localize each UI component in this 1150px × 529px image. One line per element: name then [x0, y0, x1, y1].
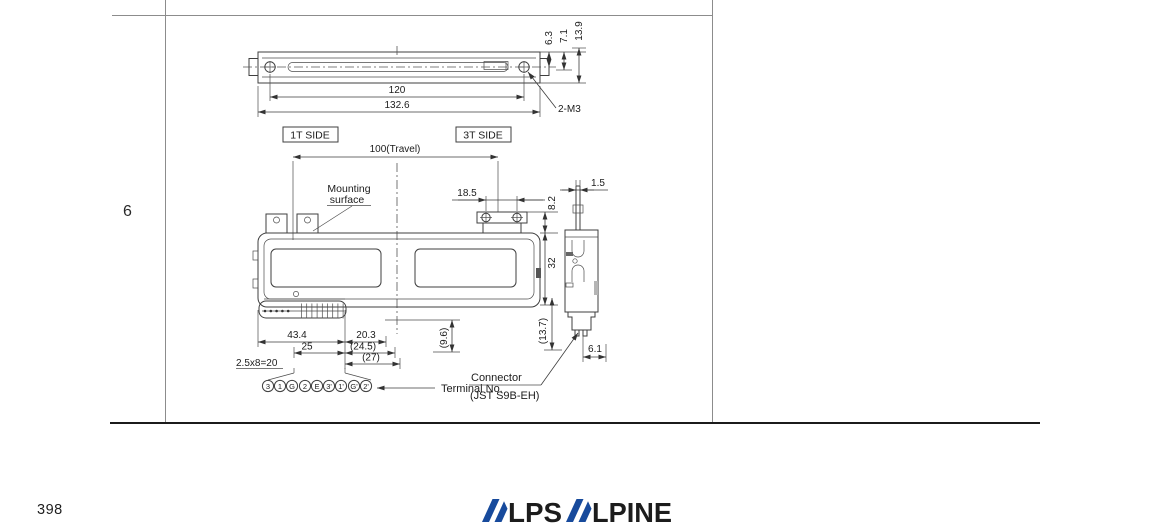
- screw-note: 2-M3: [558, 104, 581, 115]
- label-3t-side: 3T SIDE: [463, 130, 503, 142]
- terminal-label: 3: [266, 382, 270, 391]
- dim-1-5: 1.5: [591, 178, 605, 189]
- terminal-label: 2': [363, 382, 369, 391]
- logo-text-lps: LPS: [508, 497, 562, 527]
- mounting-surface-label-2: surface: [330, 194, 365, 206]
- dim-8-2: 8.2: [547, 196, 558, 210]
- terminal-label: E: [314, 382, 319, 391]
- alpine-a-icon: [566, 499, 592, 522]
- alps-a-icon: [482, 499, 508, 522]
- brand-logo: LPS LPINE: [482, 497, 672, 527]
- label-1t-side: 1T SIDE: [290, 130, 330, 142]
- dim-9-6: (9.6): [439, 328, 450, 349]
- dim-6-3: 6.3: [544, 31, 555, 45]
- terminal-label: 2: [303, 382, 307, 391]
- dim-13-9: 13.9: [574, 21, 585, 41]
- dim-6-1: 6.1: [588, 344, 602, 355]
- top-view-drawing: 120 132.6 6.3 7.1 13.9 2-M3: [243, 21, 586, 117]
- terminal-label: G': [350, 382, 358, 391]
- logo-text-lpine: LPINE: [592, 497, 672, 527]
- dim-18-5: 18.5: [457, 188, 477, 199]
- terminal-circles: 3 1 G 2 E 3' 1' G' 2': [262, 380, 371, 391]
- dim-27: (27): [362, 353, 380, 364]
- dim-25: 25: [301, 342, 313, 353]
- front-view-drawing: 18.5 8.2 32: [236, 163, 562, 369]
- terminal-label: 1': [338, 382, 344, 391]
- dim-24-5: (24.5): [350, 342, 376, 353]
- terminal-label: 1: [278, 382, 282, 391]
- dim-43-4: 43.4: [287, 330, 307, 341]
- dim-32: 32: [547, 257, 558, 269]
- dim-travel: 100(Travel): [370, 144, 421, 155]
- catalog-page: { "page": { "row_label": "6", "page_numb…: [0, 0, 1150, 529]
- dim-120: 120: [389, 85, 406, 96]
- dimension-drawing: 120 132.6 6.3 7.1 13.9 2-M3 1T SIDE 3T S…: [0, 0, 1150, 529]
- connector-name: Connector: [471, 372, 522, 384]
- connector-type: (JST S9B-EH): [470, 390, 539, 402]
- dim-20-3: 20.3: [356, 330, 376, 341]
- terminal-label: G: [289, 382, 295, 391]
- side-view-drawing: 1.5 6.1: [560, 178, 608, 362]
- dim-7-1: 7.1: [559, 29, 570, 43]
- dim-13-7: (13.7): [538, 318, 549, 344]
- dim-132-6: 132.6: [384, 100, 409, 111]
- dim-pitch: 2.5x8=20: [236, 358, 278, 369]
- terminal-label: 3': [326, 382, 332, 391]
